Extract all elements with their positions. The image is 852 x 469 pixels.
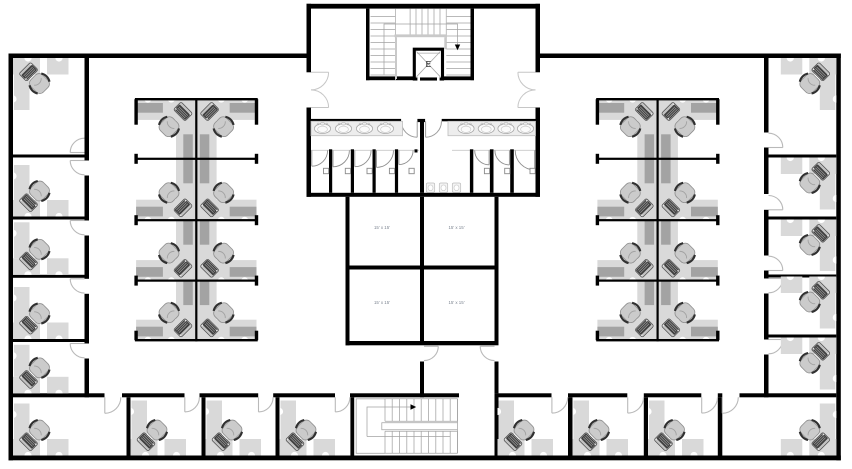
svg-text:15' x 15': 15' x 15' [374,225,390,230]
svg-text:15' x 15': 15' x 15' [448,225,464,230]
svg-text:15' x 15': 15' x 15' [374,300,390,305]
svg-text:E: E [426,60,431,69]
svg-text:15' x 15': 15' x 15' [448,300,464,305]
